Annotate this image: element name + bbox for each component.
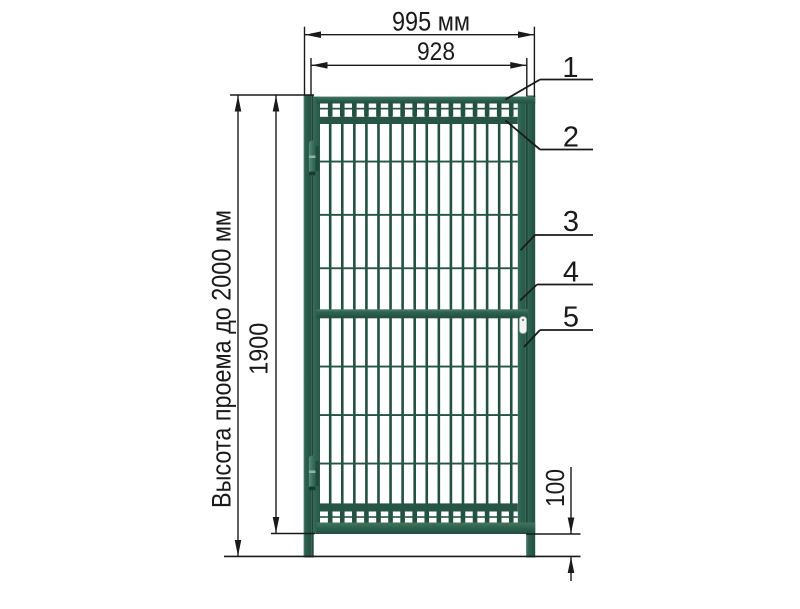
svg-text:3: 3 bbox=[563, 206, 579, 238]
svg-text:5: 5 bbox=[563, 302, 579, 334]
svg-text:2: 2 bbox=[563, 122, 579, 154]
svg-text:4: 4 bbox=[563, 257, 579, 289]
svg-text:1: 1 bbox=[562, 52, 578, 84]
svg-text:995 мм: 995 мм bbox=[392, 7, 470, 37]
svg-text:1900: 1900 bbox=[245, 323, 273, 375]
svg-text:Высота проема до 2000 мм: Высота проема до 2000 мм bbox=[207, 210, 237, 508]
svg-text:100: 100 bbox=[540, 469, 570, 507]
svg-text:928: 928 bbox=[417, 38, 455, 66]
